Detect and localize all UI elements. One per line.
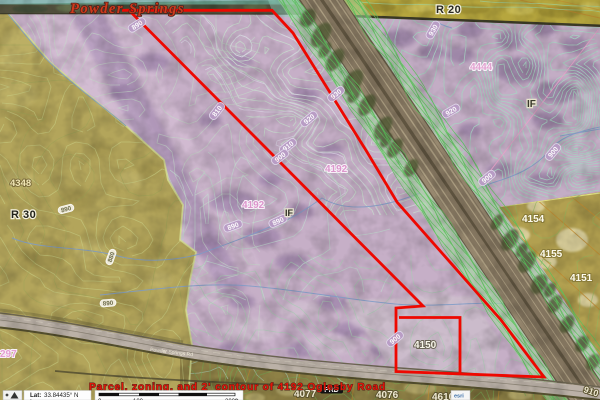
svg-text:IF: IF xyxy=(527,99,536,110)
svg-text:4192: 4192 xyxy=(242,200,265,211)
svg-text:4154: 4154 xyxy=(522,214,545,225)
svg-text:R 30: R 30 xyxy=(11,209,36,221)
svg-text:4192: 4192 xyxy=(325,164,348,175)
svg-text:IF: IF xyxy=(285,208,294,218)
svg-text:297: 297 xyxy=(0,349,17,360)
svg-text:33.84435° N: 33.84435° N xyxy=(44,392,78,399)
svg-text:4348: 4348 xyxy=(10,178,31,189)
svg-text:R 20: R 20 xyxy=(436,4,461,16)
svg-text:Lat:: Lat: xyxy=(30,392,41,399)
svg-text:890: 890 xyxy=(103,300,114,308)
svg-text:4151: 4151 xyxy=(570,273,593,284)
svg-text:4444: 4444 xyxy=(470,62,493,73)
svg-text:4155: 4155 xyxy=(540,249,563,260)
svg-text:4150: 4150 xyxy=(414,340,437,351)
svg-text:Powder Springs: Powder Springs xyxy=(70,1,185,17)
svg-text:esri: esri xyxy=(454,394,464,400)
